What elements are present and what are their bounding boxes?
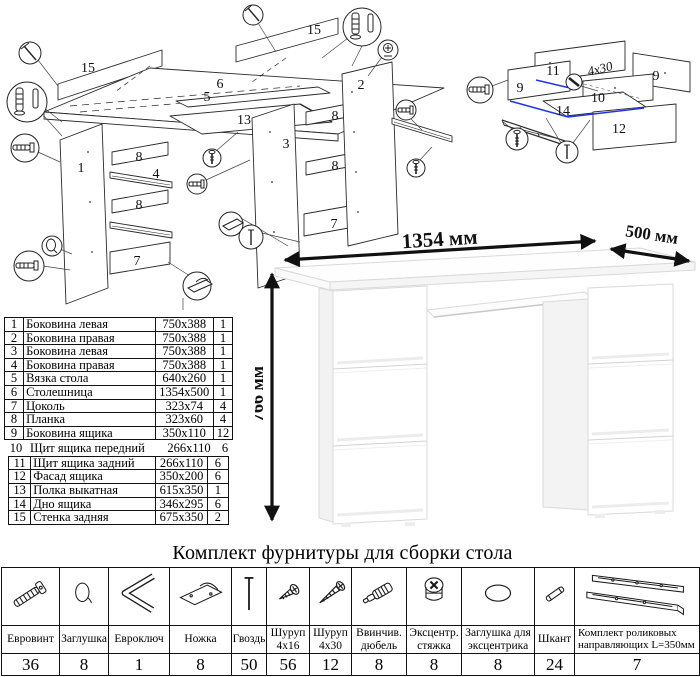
nail-icon xyxy=(235,569,263,619)
callout-screw xyxy=(203,149,221,167)
pedestal-right xyxy=(588,284,673,515)
hardware-icons-row xyxy=(2,568,700,626)
hardware-item-qty: 36 xyxy=(2,654,60,676)
table-row: 2Боковина правая750x3881 xyxy=(5,331,233,345)
part-drawer-facade xyxy=(593,104,676,150)
part-label-8: 8 xyxy=(332,159,339,174)
table-row: 11Щит ящика задний266x1106 xyxy=(9,456,229,470)
callout-nail xyxy=(19,42,41,64)
table-row: 4Боковина правая750x3881 xyxy=(5,358,233,372)
callout-cap xyxy=(42,236,62,256)
part-label-15b: 15 xyxy=(307,23,321,38)
part-label-9: 9 xyxy=(517,81,524,96)
part-roller-rail xyxy=(110,222,172,238)
table-row: 8Планка323x604 xyxy=(5,413,233,427)
part-label-2: 2 xyxy=(358,78,365,93)
hardware-item-qty: 24 xyxy=(535,654,575,676)
cap-icon xyxy=(64,569,104,619)
table-row: 15Стенка задняя675x3502 xyxy=(9,511,229,525)
hardware-item-qty: 1 xyxy=(109,654,170,676)
part-label-7: 7 xyxy=(134,254,141,269)
hardware-item-label: Шкант xyxy=(535,626,575,654)
callout-nail xyxy=(556,141,578,163)
cam-cap-icon xyxy=(472,569,524,619)
hardware-item-qty: 8 xyxy=(352,654,407,676)
screw-in-dowel-icon xyxy=(354,569,404,619)
part-side-left xyxy=(60,124,108,304)
part-label-10: 10 xyxy=(591,91,605,106)
hardware-item-qty: 8 xyxy=(170,654,232,676)
callout-cam-dowel-and-dowel xyxy=(7,82,47,122)
cam-lock-icon xyxy=(413,569,455,619)
hardware-item-qty: 8 xyxy=(462,654,535,676)
width-dimension-label: 1354 мм xyxy=(401,225,478,254)
hardware-item-label: Заглушка для эксцентрика xyxy=(462,626,535,654)
callout-euroscrew xyxy=(187,174,207,194)
callout-euroscrew xyxy=(396,100,416,120)
hardware-table: Евровинт Заглушка Евроключ Ножка Гвоздь … xyxy=(1,567,700,676)
parts-table: 1Боковина левая750x3881 2Боковина правая… xyxy=(4,317,235,525)
table-row: 14Дно ящика346x2956 xyxy=(9,497,229,511)
pedestal-left xyxy=(333,286,427,524)
depth-dimension-label: 500 мм xyxy=(624,222,680,248)
drawer-exploded-diagram: 4x30 11 9 9 10 14 12 xyxy=(450,28,700,218)
hardware-item-label: Шуруп 4x30 xyxy=(310,626,352,654)
hardware-item-label: Ввинчив. дюбель xyxy=(352,626,407,654)
hardware-item-qty: 7 xyxy=(575,654,700,676)
hardware-labels-row: Евровинт Заглушка Евроключ Ножка Гвоздь … xyxy=(2,626,700,654)
hardware-item-qty: 56 xyxy=(267,654,310,676)
parts-table-lower: 11Щит ящика задний266x1106 12Фасад ящика… xyxy=(8,456,229,525)
part-label-5: 5 xyxy=(204,90,211,105)
part-label-4: 4 xyxy=(153,167,160,182)
callout-screw xyxy=(566,74,582,90)
callout-screw xyxy=(506,128,528,150)
part-label-15a: 15 xyxy=(81,61,95,76)
part-label-12: 12 xyxy=(612,122,626,137)
callout-foot xyxy=(183,272,212,300)
part-side-right xyxy=(342,62,398,246)
part-roller-rail xyxy=(110,172,172,188)
part-label-8: 8 xyxy=(136,150,143,165)
hardware-item-qty: 8 xyxy=(60,654,109,676)
callout-euroscrew xyxy=(14,251,44,281)
hardware-item-qty: 12 xyxy=(310,654,352,676)
foot-icon xyxy=(173,569,229,619)
hardware-item-label: Евроключ xyxy=(109,626,170,654)
part-label-9: 9 xyxy=(653,69,660,84)
euroscrew-icon xyxy=(5,569,57,619)
wooden-dowel-icon xyxy=(538,569,572,619)
table-row: 1Боковина левая750x3881 xyxy=(5,318,233,332)
hardware-item-label: Гвоздь xyxy=(232,626,267,654)
hardware-item-qty: 50 xyxy=(232,654,267,676)
hardware-qty-row: 36 8 1 8 50 56 12 8 8 8 24 7 xyxy=(2,654,700,676)
hardware-item-label: Комплект роликовых направляющих L=350мм xyxy=(575,626,700,654)
callout-euroscrew xyxy=(467,77,493,103)
callout-nail xyxy=(243,5,263,25)
table-row: 12Фасад ящика350x2006 xyxy=(9,470,229,484)
table-row: 9Боковина ящика350x11012 xyxy=(5,426,233,440)
assembly-instruction-page: 15 6 15 5 13 1 8 4 8 7 3 2 8 8 7 xyxy=(0,0,700,677)
hardware-item-label: Евровинт xyxy=(2,626,60,654)
part-label-14: 14 xyxy=(556,104,570,119)
table-row: 6Столешница1354x5001 xyxy=(5,385,233,399)
part-label-11: 11 xyxy=(546,64,559,79)
hardware-item-label: Ножка xyxy=(170,626,232,654)
callout-screw xyxy=(407,159,425,177)
screw-short-icon xyxy=(269,569,307,619)
part-label-6: 6 xyxy=(217,77,224,92)
screw-long-icon xyxy=(311,569,351,619)
hardware-item-qty: 8 xyxy=(407,654,462,676)
parts-table-upper: 1Боковина левая750x3881 2Боковина правая… xyxy=(4,317,233,440)
hardware-item-label: Эксцентр. стяжка xyxy=(407,626,462,654)
table-row: 13Полка выкатная615x3501 xyxy=(9,484,229,498)
hardware-item-label: Шуруп 4x16 xyxy=(267,626,310,654)
roller-guides-icon xyxy=(578,568,696,620)
part-label-3: 3 xyxy=(283,137,290,152)
part-label-8: 8 xyxy=(136,198,143,213)
hex-key-icon xyxy=(112,569,166,619)
desk-drawing xyxy=(275,248,695,527)
callout-cam-lock xyxy=(378,40,398,60)
table-row: 5Вязка стола640x2601 xyxy=(5,372,233,386)
callout-euroscrew xyxy=(11,134,39,162)
table-row: 10 Щит ящика передний 266x110 6 xyxy=(4,441,235,455)
desk-dimensions-image: 1354 мм 500 мм 766 мм xyxy=(255,222,700,552)
part-label-8: 8 xyxy=(332,109,339,124)
callout-cam-dowel-and-dowel xyxy=(343,8,381,46)
table-row: 3Боковина левая750x3881 xyxy=(5,345,233,359)
table-row: 7Цоколь323x744 xyxy=(5,399,233,413)
height-dimension-label: 766 мм xyxy=(255,366,267,422)
hardware-kit-title: Комплект фурнитуры для сборки стола xyxy=(0,542,685,565)
part-label-13: 13 xyxy=(237,113,251,128)
hardware-item-label: Заглушка xyxy=(60,626,109,654)
part-label-1: 1 xyxy=(78,161,85,176)
